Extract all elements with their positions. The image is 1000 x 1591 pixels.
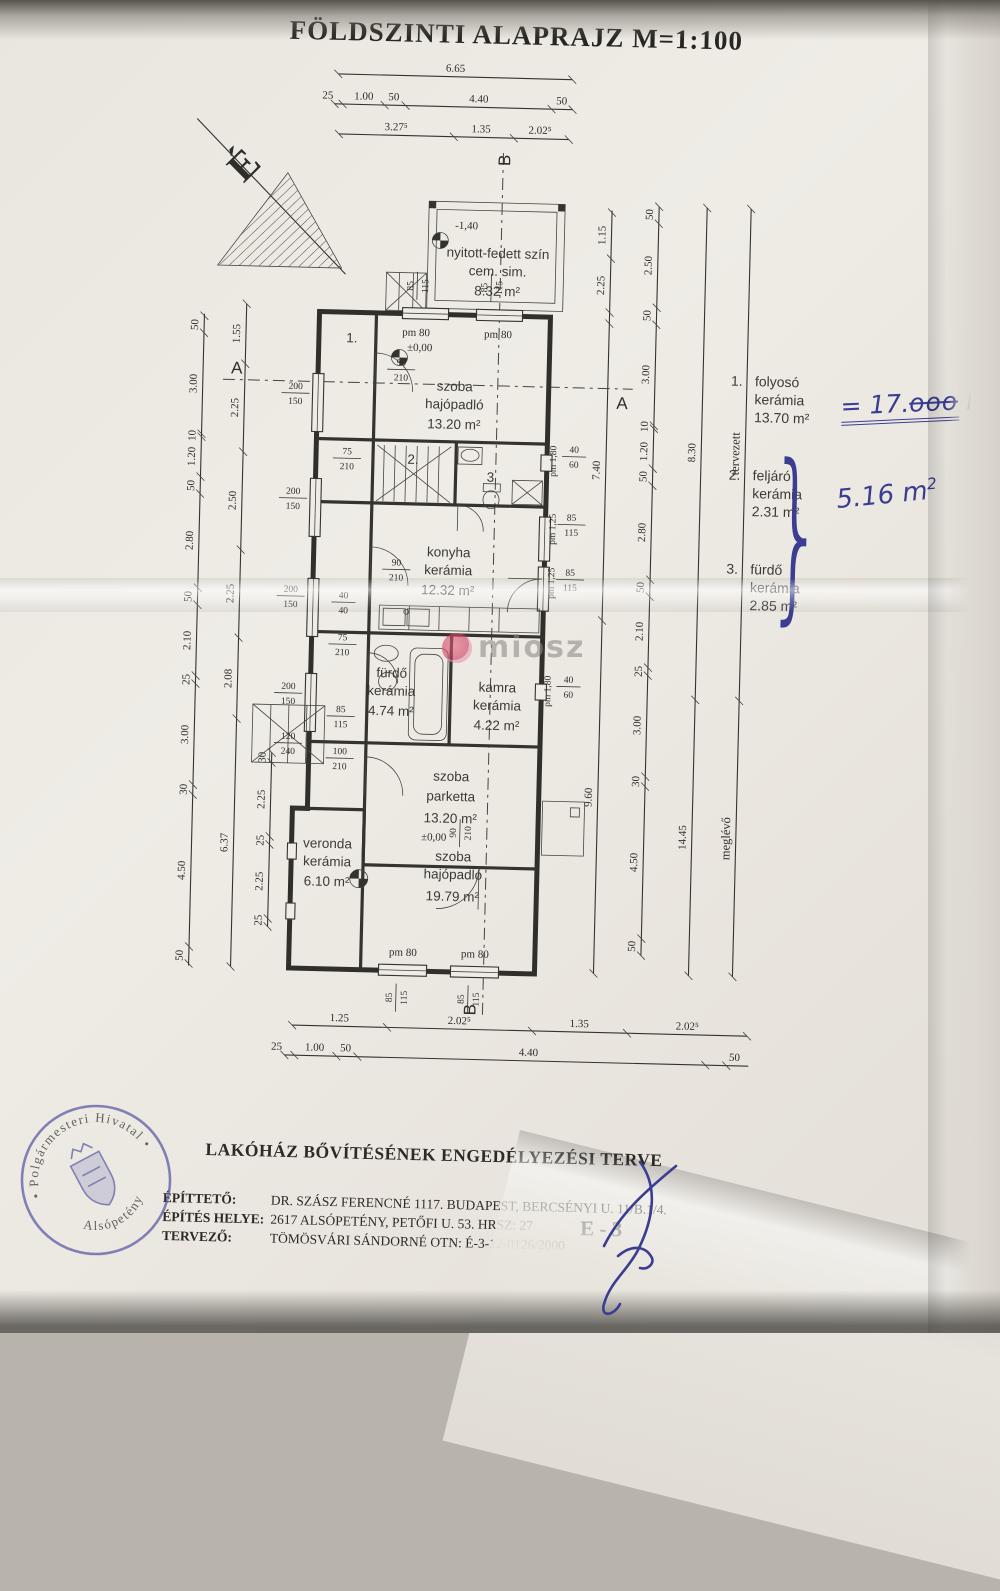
room-kamra-label: kamra kerámia 4.22 m²: [472, 679, 522, 733]
section-mark-a-left: A: [231, 358, 243, 377]
dim-label: 25: [633, 665, 645, 677]
dim-label: 50: [185, 479, 197, 491]
vent-size-40-60: 4060: [556, 675, 581, 701]
room-label: kerámia: [367, 683, 416, 699]
dim-label: 2.50: [643, 255, 655, 275]
dim-chain-left-inner: 1.55 2.25 2.50 2.25 2.08 6.37: [215, 299, 250, 970]
legend-number: 1.: [731, 372, 743, 390]
room-label: nyitott-fedett szín: [446, 245, 549, 263]
north-hatch-triangle: [218, 171, 344, 268]
dim-label: 50: [189, 318, 201, 330]
room-label: kerámia: [424, 562, 473, 578]
dim-label: 4.50: [176, 860, 188, 880]
svg-text:115: 115: [421, 279, 431, 293]
legend-number: 2.: [728, 466, 740, 484]
dim-label: 25: [271, 1041, 283, 1053]
legend-number: 3.: [726, 560, 738, 578]
dim-label: 50: [637, 470, 649, 482]
dim-label: 7.40: [591, 460, 603, 480]
watermark-text: miosz: [478, 630, 585, 665]
vent-size-40-60: 4060: [562, 446, 587, 472]
door-size-75-210: 75210: [328, 633, 357, 659]
watermark-logo-icon: [442, 633, 472, 663]
watermark: miosz: [442, 630, 585, 665]
dim-label: 50: [174, 949, 186, 961]
dim-label: 1.35: [569, 1018, 589, 1030]
sill-label: pm 80: [389, 946, 418, 959]
svg-text:115: 115: [400, 991, 410, 1005]
dim-label: 1.15: [596, 225, 608, 245]
dim-label: 3.00: [179, 724, 191, 744]
dim-label: 30: [630, 775, 642, 787]
room-parketta-label: szoba parketta 13.20 m²: [423, 768, 478, 826]
paper-edge-bottom: [0, 1290, 1000, 1333]
svg-text:90: 90: [396, 358, 406, 368]
svg-text:75: 75: [342, 447, 352, 457]
svg-text:75: 75: [338, 633, 348, 643]
room-number-3: 3: [487, 470, 495, 485]
svg-text:200: 200: [288, 382, 303, 392]
dim-label-meglevo: meglévő: [718, 817, 733, 860]
room-label: szoba: [433, 768, 470, 784]
dim-label: 6.65: [446, 63, 466, 75]
sill-label: pm 80: [461, 948, 490, 961]
window-size-85-115: 85115: [326, 705, 355, 731]
dim-label: 4.40: [469, 93, 489, 105]
dim-label: 10: [186, 429, 198, 441]
dim-label: 2.80: [184, 530, 196, 550]
dim-label: 4.40: [519, 1047, 539, 1059]
room-area: 19.79 m²: [425, 888, 479, 904]
svg-text:40: 40: [569, 446, 579, 456]
svg-text:210: 210: [340, 462, 355, 472]
paper-seam-right: [928, 0, 1000, 1333]
dim-label: 1.00: [305, 1041, 325, 1053]
sill-label: pm 80: [402, 327, 431, 340]
window-size-200-150: 200150: [279, 487, 308, 513]
svg-text:85: 85: [480, 282, 490, 292]
section-line-a: [223, 379, 633, 389]
dim-label: 50: [626, 940, 638, 952]
svg-text:200: 200: [286, 487, 301, 497]
svg-text:115: 115: [564, 529, 578, 539]
room-label: fürdő: [376, 665, 407, 681]
svg-text:150: 150: [281, 697, 296, 707]
dim-label: 1.20: [638, 441, 650, 461]
level-label: ±0,00: [407, 342, 433, 355]
dim-label: 3.00: [640, 364, 652, 384]
sill-label: pm 1,25: [548, 513, 559, 545]
svg-text:240: 240: [281, 747, 296, 757]
svg-text:115: 115: [495, 281, 505, 295]
north-letter: É: [218, 139, 269, 190]
dim-label: 14.45: [677, 825, 690, 851]
dim-label: 6.37: [218, 832, 230, 852]
level-label: ±0,00: [421, 831, 447, 844]
svg-text:60: 60: [569, 461, 579, 471]
room-label: veronda: [303, 835, 353, 851]
dim-label: 10: [639, 420, 651, 432]
dim-label: 2.10: [634, 621, 646, 641]
svg-text:150: 150: [288, 397, 303, 407]
dim-label: 2.25: [229, 397, 241, 417]
dim-label: 1.20: [186, 446, 198, 466]
dim-label: 2.25: [595, 275, 607, 295]
svg-text:115: 115: [333, 720, 347, 730]
dim-label: 25: [254, 834, 266, 846]
room-label: kerámia: [303, 853, 352, 869]
room-area: 4.74 m²: [368, 703, 415, 719]
room-area: 13.20 m²: [423, 810, 477, 826]
room-label: hajópadló: [423, 866, 482, 882]
dim-label: 3.27⁵: [384, 121, 408, 134]
svg-text:60: 60: [563, 691, 573, 701]
sill-label: pm 1,80: [543, 675, 554, 707]
dim-label: 8.30: [686, 442, 698, 462]
svg-text:85: 85: [336, 705, 346, 715]
svg-text:90: 90: [392, 558, 402, 568]
section-mark-b-top: B: [495, 154, 514, 166]
svg-text:100: 100: [333, 747, 348, 757]
dim-label: 2.08: [222, 668, 234, 688]
svg-text:150: 150: [286, 502, 301, 512]
room-area: 13.20 m²: [427, 416, 481, 432]
paper-fold-middle: [0, 578, 1000, 612]
svg-text:115: 115: [472, 992, 482, 1006]
dim-label: 3.00: [188, 373, 200, 393]
dim-chain-steps: 30 2.25 25 2.25 25: [252, 748, 275, 930]
dim-label: 1.25: [330, 1012, 350, 1024]
dim-label: 2.25: [253, 871, 265, 891]
room-veranda-label: veronda kerámia 6.10 m²: [302, 835, 353, 889]
svg-text:85: 85: [567, 514, 577, 524]
cupboard: [541, 801, 584, 856]
svg-text:85: 85: [406, 281, 416, 291]
room-area: 4.22 m²: [473, 717, 520, 733]
window-size-200-150: 200150: [281, 382, 310, 408]
room-label: szoba: [437, 378, 474, 394]
svg-text:40: 40: [564, 676, 574, 686]
door-size-100-210: 100210: [325, 747, 354, 773]
north-arrow: É: [194, 118, 350, 274]
room-szoba1-label: pm 80 pm 80 ±0,00 szoba hajópadló 13.20 …: [400, 327, 513, 434]
dim-label: 4.50: [628, 852, 640, 872]
room-label: kamra: [478, 680, 516, 696]
dim-label: 25: [253, 914, 265, 926]
room-area: 6.10 m²: [304, 873, 351, 889]
dim-label: 1.35: [471, 123, 491, 135]
sill-label: pm 1,80: [549, 445, 560, 477]
dim-label: 25: [322, 90, 334, 102]
window-size-85-115: 85115: [557, 513, 586, 539]
dim-label: 50: [340, 1042, 352, 1054]
dim-label: 50: [641, 309, 653, 321]
room-number-2: 2.: [407, 452, 419, 467]
svg-text:210: 210: [335, 648, 350, 658]
sill-label: pm 80: [484, 329, 513, 342]
dim-label: 2.25: [255, 789, 267, 809]
dim-label: 1.00: [354, 90, 374, 102]
room-label: hajópadló: [425, 396, 484, 412]
room-label: szoba: [435, 849, 472, 865]
dim-label: 50: [556, 95, 568, 107]
room-label: konyha: [427, 544, 471, 560]
paper-shadow-top: [0, 0, 1000, 40]
dim-label: 50: [644, 208, 656, 220]
level-label: -1,40: [455, 220, 479, 233]
window-size-200-150: 200150: [274, 682, 303, 708]
svg-text:210: 210: [464, 826, 474, 841]
svg-text:200: 200: [281, 682, 296, 692]
dim-label: 2.50: [227, 490, 239, 510]
svg-text:90: 90: [449, 828, 459, 838]
dim-label: 3.00: [631, 715, 643, 735]
svg-text:85: 85: [457, 994, 467, 1004]
dim-label: 25: [180, 673, 192, 685]
handwritten-signature: [588, 1160, 698, 1320]
dim-label: 2.02⁵: [528, 125, 552, 138]
door-size-75-210: 75210: [333, 447, 362, 473]
dim-label: 2.80: [636, 522, 648, 542]
bathroom3-fixtures: [457, 447, 543, 510]
svg-text:210: 210: [332, 762, 347, 772]
dim-label: 2.02⁵: [675, 1020, 699, 1033]
svg-text:85: 85: [385, 992, 395, 1002]
svg-text:210: 210: [394, 373, 409, 383]
room-furdo-label: fürdő kerámia 4.74 m²: [367, 665, 417, 719]
stamp-crest-icon: [64, 1139, 123, 1212]
room-szoba2-label: ±0,00 szoba hajópadló 19.79 m² pm 80 pm …: [389, 830, 492, 960]
dim-label: 50: [729, 1052, 741, 1064]
room-label: cem. sim.: [469, 263, 527, 279]
window-size-85-115: 85115: [384, 983, 410, 1012]
dim-label: 50: [388, 91, 400, 103]
room-number-1: 1.: [346, 330, 358, 345]
svg-text:120: 120: [281, 732, 296, 742]
dim-label: 1.55: [231, 323, 243, 343]
dim-label: 2.10: [181, 630, 193, 650]
room-label: parketta: [426, 788, 476, 804]
dim-chain-top: 6.65 25 1.00 50 4.40 50 3.27⁵ 1.35 2.02⁵: [321, 60, 577, 144]
dim-chain-bottom: 1.25 2.02⁵ 1.35 2.02⁵ 25 1.00 50 4.40 50: [271, 1011, 752, 1071]
dim-label: 2.02⁵: [448, 1015, 472, 1028]
dim-label: 30: [178, 783, 190, 795]
room-label: kerámia: [473, 697, 522, 713]
dim-chain-left-outer: 50 3.00 10 1.20 50 2.80 50 2.10 25 3.00 …: [173, 311, 208, 967]
section-mark-a-right: A: [616, 394, 628, 413]
